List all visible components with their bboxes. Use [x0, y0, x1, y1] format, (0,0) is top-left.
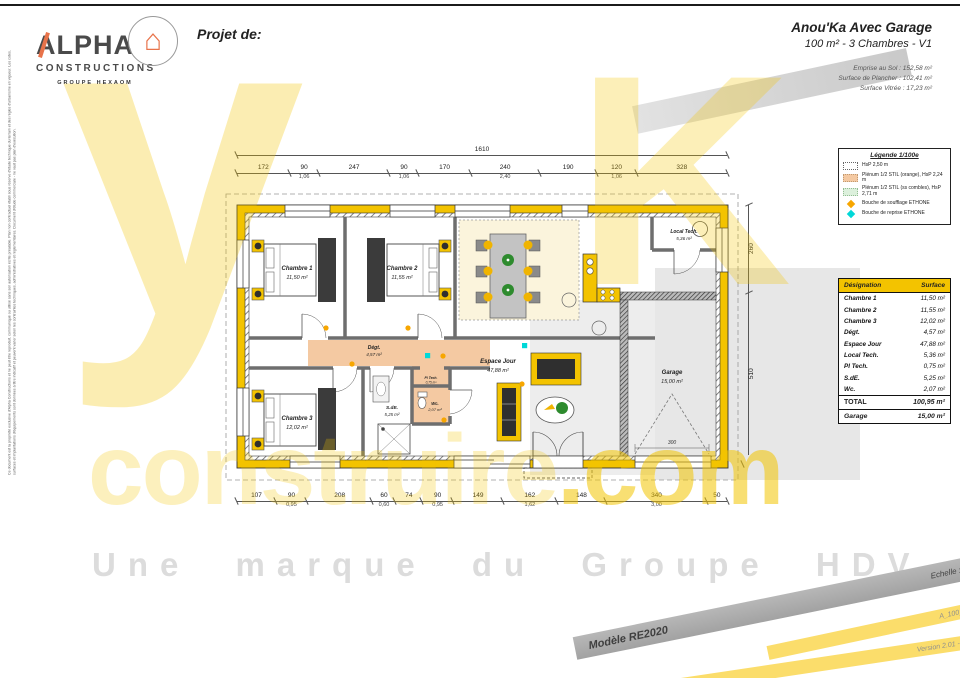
return-vent-dot — [425, 353, 430, 358]
model-label: Modèle RE2020 — [588, 624, 669, 652]
window — [290, 456, 340, 468]
room-area: 2,07 m² — [427, 407, 442, 412]
table-row: Chambre 211,55 m² — [839, 304, 950, 315]
legend-item: HsP 2,50 m — [843, 162, 946, 170]
sink-icon — [587, 268, 593, 274]
dimension-value: 260 — [748, 205, 756, 293]
lamp-icon — [255, 291, 262, 298]
lamp-icon — [442, 291, 449, 298]
supply-vent-dot — [405, 325, 410, 330]
table-cell-designation: Espace Jour — [844, 341, 881, 348]
legal-disclaimer: Ce document est la propriété exclusive d… — [7, 40, 28, 475]
floor-plan: 300 Chambre 1 11,50 m² Chambre 2 11,55 m… — [222, 132, 742, 522]
legend-label: Bouche de soufflage ETHONE — [862, 201, 930, 207]
table-cell-surface: 11,55 m² — [921, 307, 945, 314]
room-label: Chambre 2 — [386, 266, 418, 272]
supply-vent-dot — [323, 325, 328, 330]
garage-door-dim: 300 — [668, 440, 677, 446]
kitchen-counter-icon — [597, 288, 620, 302]
model-title: Anou'Ka Avec Garage — [791, 20, 932, 35]
lamp-icon — [255, 441, 262, 448]
table-cell-designation: Local Tech. — [844, 352, 878, 359]
window — [562, 205, 588, 217]
garage-door-opening — [635, 456, 711, 468]
table-row: Pl Tech.0,75 m² — [839, 361, 950, 372]
table-cell-surface: 0,75 m² — [924, 363, 945, 370]
room-label: Chambre 3 — [281, 416, 313, 422]
legend-title: Légende 1/100e — [843, 152, 946, 159]
window — [237, 240, 249, 288]
watermark-tagline: Une marque du Groupe HDV — [92, 548, 922, 581]
table-cell-designation: Wc. — [844, 386, 855, 393]
supply-vent-dot — [440, 353, 445, 358]
tv-unit-icon — [531, 353, 581, 385]
room-label: Garage — [662, 370, 683, 376]
table-cell-surface: 2,07 m² — [924, 386, 945, 393]
window — [390, 205, 435, 217]
room-area: 0,75 m² — [426, 381, 438, 385]
table-cell-designation: Chambre 3 — [844, 318, 877, 325]
table-row: Local Tech.5,36 m² — [839, 350, 950, 361]
table-cell-surface: 11,50 m² — [921, 295, 945, 302]
room-area: 11,50 m² — [286, 275, 307, 281]
sliding-bay-window — [454, 456, 530, 468]
room-label: Espace Jour — [480, 359, 516, 365]
table-cell-surface: 5,25 m² — [924, 375, 945, 382]
door-arc — [302, 314, 326, 338]
room-label: Chambre 1 — [281, 266, 313, 272]
room-area: 47,88 m² — [487, 368, 509, 374]
door-arc — [418, 314, 442, 338]
room-label: Dégt. — [368, 345, 381, 351]
basin-icon — [377, 382, 386, 396]
room-label: S.dE. — [386, 405, 398, 411]
cyan-vent-icon — [843, 210, 858, 218]
project-label: Projet de: — [197, 26, 262, 42]
sink-icon — [587, 259, 593, 265]
chair-seat-icon — [524, 241, 533, 250]
dimension-value: 510 — [748, 293, 756, 455]
wardrobe-icon — [318, 238, 336, 302]
room-area: 5,25 m² — [385, 412, 400, 417]
coffee-table-icon — [536, 397, 574, 423]
table-cell-designation: Chambre 2 — [844, 307, 877, 314]
toilet-icon — [418, 392, 427, 409]
table-header-surface: Surface — [921, 282, 945, 289]
table-cell-surface: 4,57 m² — [924, 329, 945, 336]
table-cell-designation: Chambre 1 — [844, 295, 877, 302]
legend-item: Bouche de reprise ETHONE — [843, 210, 946, 218]
lamp-icon — [255, 243, 262, 250]
model-banner: Modèle RE2020 Echelle : 1/75e — [573, 552, 960, 660]
table-cell-designation: S.dE. — [844, 375, 860, 382]
table-row: Wc.2,07 m² — [839, 384, 950, 395]
metric-vitree: Surface Vitrée : 17,23 m² — [791, 84, 932, 94]
table-row: S.dE.5,25 m² — [839, 373, 950, 384]
chair-seat-icon — [484, 293, 493, 302]
table-cell-designation: Dégt. — [844, 329, 860, 336]
dimension-segment: 510 — [742, 293, 756, 455]
shower-icon — [378, 424, 410, 454]
title-block: Anou'Ka Avec Garage 100 m² - 3 Chambres … — [791, 20, 932, 93]
dining-table-icon — [490, 234, 526, 318]
metric-plancher: Surface de Plancher : 102,41 m² — [791, 74, 932, 84]
code-label: A_100_3C_G_V1 — [939, 602, 960, 620]
dimension-bar-right: 260510 — [742, 205, 756, 468]
dimension-segment: 260 — [742, 205, 756, 293]
legend-label: HsP 2,50 m — [862, 163, 888, 169]
legend-item: Plénum 1/2 STIL (ss combles), HsP 2,71 m — [843, 186, 946, 197]
wardrobe-icon — [367, 238, 385, 302]
legend-label: Bouche de reprise ETHONE — [862, 211, 925, 217]
room-label: Pl Tech. — [425, 376, 438, 380]
metric-emprise: Emprise au Sol : 152,58 m² — [791, 64, 932, 74]
legend-label: Plénum 1/2 STIL (orange), HsP 2,24 m — [862, 173, 946, 184]
chair-seat-icon — [484, 241, 493, 250]
entry-double-door — [533, 432, 583, 468]
table-header-designation: Désignation — [844, 282, 881, 289]
legend-box: Légende 1/100e HsP 2,50 mPlénum 1/2 STIL… — [838, 148, 951, 225]
alpha-constructions-logo: ALPHA ⌂ CONSTRUCTIONS GROUPE HEXAOM — [36, 14, 196, 86]
plant-icon — [502, 254, 514, 266]
house-icon: ⌂ — [144, 24, 162, 57]
plan-sheet: y K construire.com Une marque du Groupe … — [0, 0, 960, 678]
sideboard-icon — [497, 383, 521, 441]
lamp-icon — [255, 393, 262, 400]
scale-label: Echelle : 1/75e — [930, 561, 960, 580]
surface-table: Désignation Surface Chambre 111,50 m²Cha… — [838, 278, 951, 424]
window — [285, 205, 330, 217]
table-cell-surface: 47,88 m² — [920, 341, 945, 348]
window — [237, 388, 249, 436]
room-label: Local Tech. — [670, 229, 697, 235]
plenum-corridor — [308, 340, 490, 366]
room-area: 12,02 m² — [286, 425, 308, 431]
door-arc — [450, 390, 472, 414]
table-row: Chambre 111,50 m² — [839, 293, 950, 304]
room-area: 5,36 m² — [676, 236, 692, 241]
chair-seat-icon — [484, 267, 493, 276]
supply-vent-dot — [441, 417, 446, 422]
window — [716, 228, 728, 272]
logo-stamp-icon: ⌂ — [128, 16, 178, 66]
sheet-top-border — [0, 4, 960, 6]
living-room-furniture — [497, 353, 581, 441]
lamp-icon — [442, 243, 449, 250]
chair-seat-icon — [524, 293, 533, 302]
table-total-row: TOTAL 100,95 m² — [839, 395, 950, 409]
legend-items: HsP 2,50 mPlénum 1/2 STIL (orange), HsP … — [843, 162, 946, 218]
wardrobe-icon — [318, 388, 336, 450]
dotted-vent-icon — [843, 162, 858, 170]
room-area: 11,55 m² — [391, 275, 412, 281]
stool-icon — [592, 321, 606, 335]
plant-icon — [502, 284, 514, 296]
supply-vent-dot — [349, 361, 354, 366]
surface-metrics: Emprise au Sol : 152,58 m² Surface de Pl… — [791, 64, 932, 93]
chair-seat-icon — [524, 267, 533, 276]
door-arc — [674, 250, 700, 274]
room-area: 15,00 m² — [661, 379, 683, 385]
table-cell-surface: 12,02 m² — [920, 318, 945, 325]
table-cell-surface: 5,36 m² — [924, 352, 945, 359]
table-row: Chambre 312,02 m² — [839, 316, 950, 327]
legend-item: Plénum 1/2 STIL (orange), HsP 2,24 m — [843, 173, 946, 184]
table-header: Désignation Surface — [839, 279, 950, 293]
legend-swatch — [843, 188, 858, 196]
supply-vent-dot — [519, 381, 524, 386]
version-label: Version 2.01 - Mars 2023 — [916, 635, 960, 654]
window — [455, 205, 510, 217]
logo-group-tagline: GROUPE HEXAOM — [36, 80, 154, 86]
legend-item: Bouche de soufflage ETHONE — [843, 200, 946, 208]
table-row: Espace Jour47,88 m² — [839, 339, 950, 350]
model-subtitle: 100 m² - 3 Chambres - V1 — [791, 38, 932, 50]
table-garage-row: Garage 15,00 m² — [839, 409, 950, 423]
surface-table-body: Chambre 111,50 m²Chambre 211,55 m²Chambr… — [839, 293, 950, 395]
door-arc — [333, 368, 357, 392]
table-row: Dégt.4,57 m² — [839, 327, 950, 338]
return-vent-dot — [522, 343, 527, 348]
logo-subname: CONSTRUCTIONS — [36, 63, 196, 74]
legend-swatch — [843, 174, 858, 182]
legend-label: Plénum 1/2 STIL (ss combles), HsP 2,71 m — [862, 186, 946, 197]
plant-icon — [556, 402, 568, 414]
entry-porch — [524, 468, 592, 478]
table-cell-designation: Pl Tech. — [844, 363, 868, 370]
room-area: 4,57 m² — [366, 352, 382, 357]
room-label: Wc. — [431, 401, 438, 406]
orange-vent-icon — [843, 200, 858, 208]
